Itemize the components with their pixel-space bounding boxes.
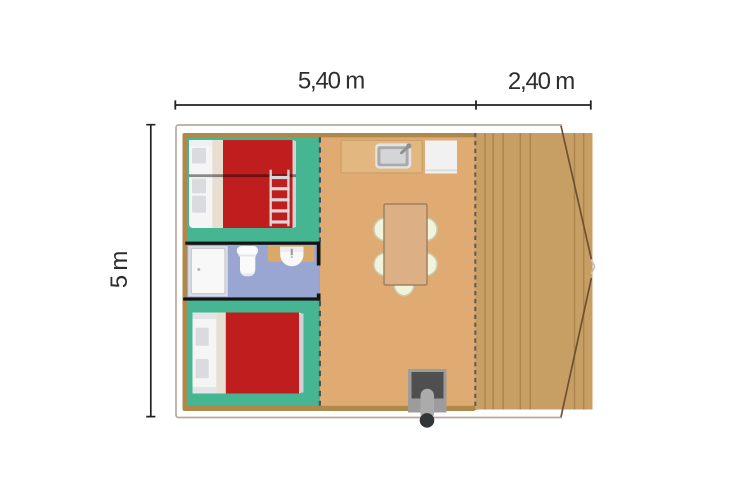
svg-text:2,40 m: 2,40 m — [508, 68, 574, 95]
svg-text:5 m: 5 m — [106, 252, 133, 289]
svg-text:5,40 m: 5,40 m — [298, 68, 364, 95]
